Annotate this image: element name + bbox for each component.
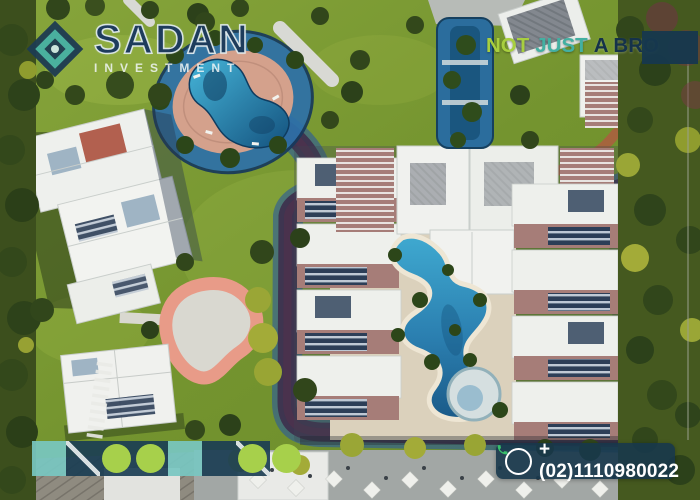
- bottom-left-villa: [57, 343, 185, 443]
- deco-tile-teal: [32, 441, 66, 476]
- marketing-image: SADAN INVESTMENT NOT JUST A BRO +(02)111…: [0, 0, 700, 500]
- brand-name: SADAN: [94, 20, 250, 59]
- deco-shapes-band: [32, 441, 304, 476]
- brand-logo: SADAN INVESTMENT: [26, 20, 250, 78]
- brand-subtitle: INVESTMENT: [94, 61, 250, 75]
- phone-badge: +(02)1110980022: [496, 443, 675, 479]
- deco-tile-navy-diag: [66, 441, 100, 476]
- phone-number: +(02)1110980022: [539, 439, 679, 483]
- central-complex: [294, 146, 624, 445]
- tagline-word-2: JUST: [535, 34, 587, 58]
- tagline-word-1: NOT: [486, 34, 529, 58]
- deco-tile-navy-diag-circle: [236, 441, 270, 476]
- phone-icon: [505, 448, 532, 475]
- complex-right-buildings: [512, 184, 618, 440]
- deco-tile-navy: [202, 441, 236, 476]
- tagline: NOT JUST A BRO: [486, 34, 659, 58]
- deco-tile-navy-circle: [100, 441, 134, 476]
- diamond-logo-icon: [26, 20, 84, 78]
- deco-tile-teal: [168, 441, 202, 476]
- deco-tile-navy-circle: [134, 441, 168, 476]
- deco-tile-circle: [270, 441, 304, 476]
- tagline-cover-box: [642, 31, 698, 64]
